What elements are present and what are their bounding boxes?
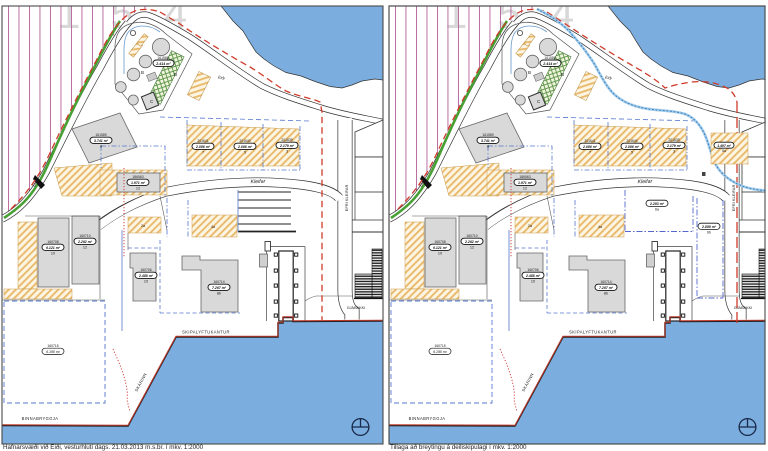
svg-text:6b: 6b bbox=[707, 230, 711, 234]
svg-text:6a: 6a bbox=[655, 207, 659, 211]
svg-text:2.283 m²: 2.283 m² bbox=[649, 202, 665, 206]
svg-text:1.497 m²: 1.497 m² bbox=[717, 144, 731, 148]
svg-text:2.859 m²: 2.859 m² bbox=[701, 225, 717, 229]
svg-text:5a: 5a bbox=[722, 149, 726, 153]
svg-text:Tillaga að breytingu á deilisk: Tillaga að breytingu á deiliskipulagi í … bbox=[390, 443, 527, 451]
svg-text:Hafnarsvæði við Eiði, vesturhl: Hafnarsvæði við Eiði, vesturhluti dags. … bbox=[3, 443, 204, 451]
